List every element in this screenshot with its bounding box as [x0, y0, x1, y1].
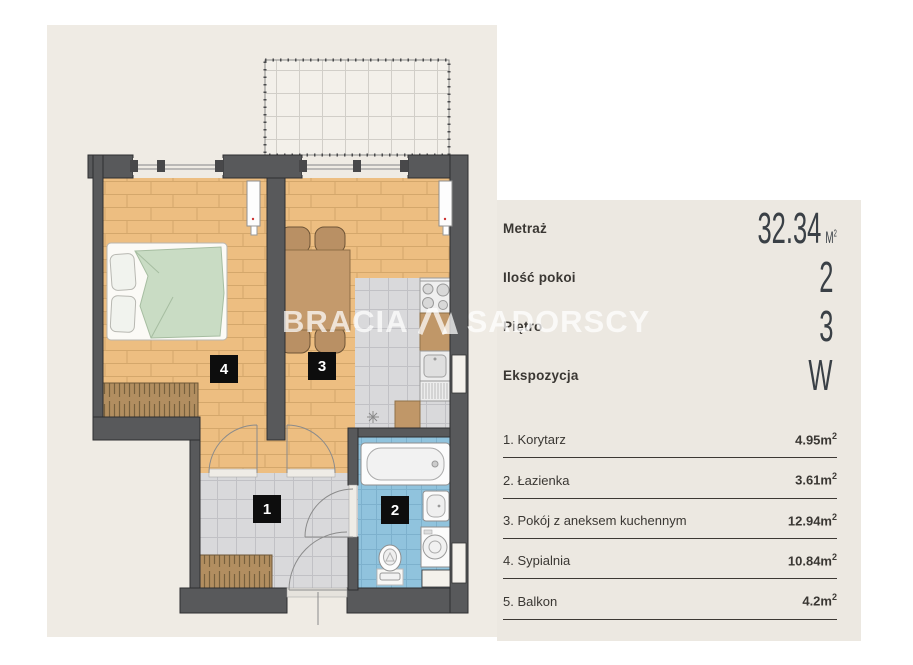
corridor-wardrobe	[200, 555, 272, 588]
spec-label: Piętro	[503, 319, 542, 334]
floorplan-svg: 4 3 1 2	[47, 25, 497, 637]
bed	[107, 243, 227, 340]
wall-recess-entrance	[422, 570, 450, 587]
spec-value: 3	[819, 305, 837, 349]
room-name: 2. Łazienka	[503, 473, 570, 488]
room-name: 4. Sypialnia	[503, 553, 570, 568]
room-area: 10.84m2	[788, 552, 837, 568]
room-area: 3.61m2	[795, 471, 837, 487]
floorplan-image: 4 3 1 2	[47, 25, 497, 637]
svg-text:2: 2	[391, 502, 399, 519]
room-area: 12.94m2	[788, 512, 837, 528]
window-living	[299, 158, 408, 175]
window-bedroom	[130, 158, 223, 175]
room-name: 3. Pokój z aneksem kuchennym	[503, 513, 687, 528]
spec-row-ilosc-pokoi: Ilość pokoi 2	[503, 253, 837, 302]
room-row-pokoj: 3. Pokój z aneksem kuchennym 12.94m2	[503, 499, 837, 539]
room-area: 4.2m2	[802, 592, 837, 608]
spec-row-metraz: Metraż 32.34M2	[503, 204, 837, 253]
room-row-balkon: 5. Balkon 4.2m2	[503, 579, 837, 619]
balcony	[265, 60, 449, 155]
room-row-lazienka: 2. Łazienka 3.61m2	[503, 458, 837, 498]
room-label-living: 3	[308, 352, 336, 380]
spec-row-ekspozycja: Ekspozycja W	[503, 351, 837, 400]
room-area: 4.95m2	[795, 431, 837, 447]
spec-label: Metraż	[503, 221, 547, 236]
spec-value: 32.34M2	[758, 207, 837, 251]
room-name: 1. Korytarz	[503, 432, 566, 447]
kitchen-cabinet	[395, 401, 420, 428]
room-name: 5. Balkon	[503, 594, 557, 609]
spec-list: Metraż 32.34M2 Ilość pokoi 2 Piętro 3 Ek…	[503, 204, 837, 400]
bathtub	[361, 443, 450, 485]
spec-row-pietro: Piętro 3	[503, 302, 837, 351]
room-row-korytarz: 1. Korytarz 4.95m2	[503, 418, 837, 458]
room-row-sypialnia: 4. Sypialnia 10.84m2	[503, 539, 837, 579]
toilet	[377, 545, 403, 585]
room-area-list: 1. Korytarz 4.95m2 2. Łazienka 3.61m2 3.…	[503, 418, 837, 620]
spec-value: W	[809, 354, 837, 398]
room-label-hall: 1	[253, 495, 281, 523]
spec-label: Ekspozycja	[503, 368, 579, 383]
wall-niche-lower	[452, 543, 466, 583]
wall-niche-upper	[452, 355, 466, 393]
room-label-bedroom: 4	[210, 355, 238, 383]
bedroom-wardrobe	[103, 383, 198, 417]
kitchen-counter	[420, 313, 450, 351]
room-label-bath: 2	[381, 496, 409, 524]
svg-text:4: 4	[220, 361, 229, 378]
spec-value: 2	[819, 256, 837, 300]
property-info-panel: Metraż 32.34M2 Ilość pokoi 2 Piętro 3 Ek…	[497, 200, 861, 641]
svg-text:1: 1	[263, 501, 271, 518]
spec-label: Ilość pokoi	[503, 270, 576, 285]
svg-text:3: 3	[318, 358, 326, 375]
bathroom-sink	[423, 491, 449, 521]
washing-machine	[421, 527, 450, 567]
